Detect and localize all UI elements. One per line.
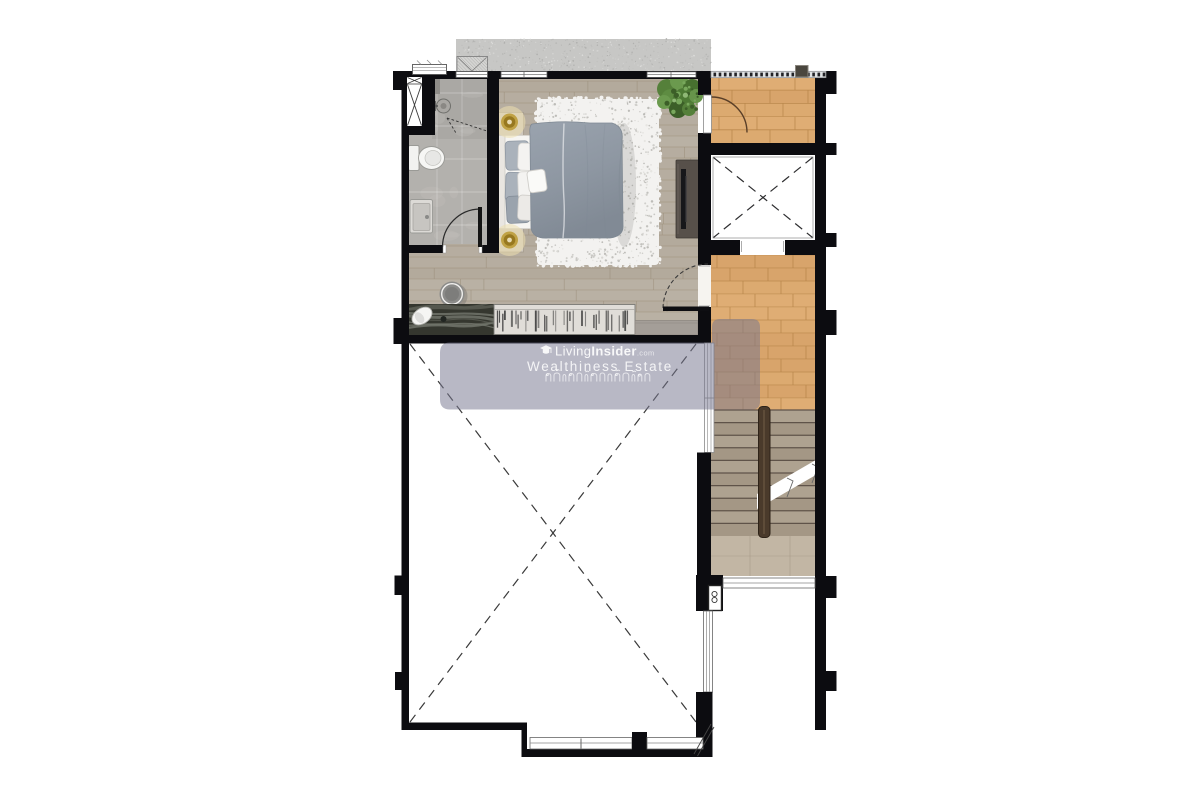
svg-text:Wealthiness Estate: Wealthiness Estate [527,359,673,374]
